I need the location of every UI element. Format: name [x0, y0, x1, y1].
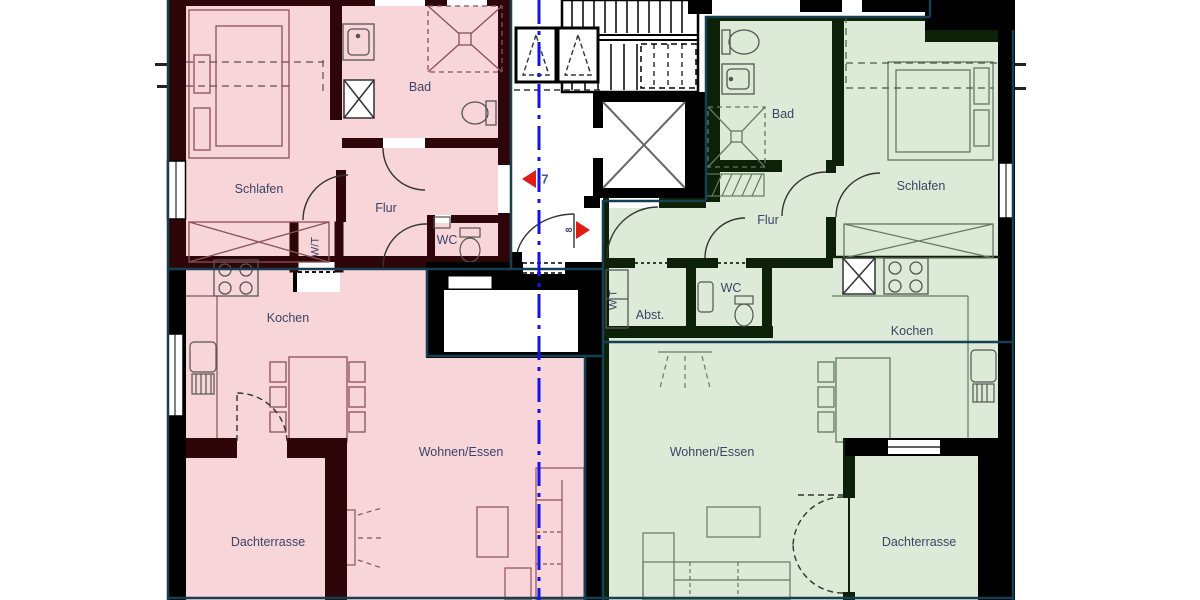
room-label-kochen-right: Kochen	[891, 325, 933, 338]
skylight-icon	[558, 28, 598, 82]
room-label-dachterrasse-right: Dachterrasse	[882, 536, 956, 549]
room-label-bad-right: Bad	[772, 108, 794, 121]
room-label-flur-right: Flur	[757, 214, 779, 227]
skylight-icon	[516, 28, 556, 82]
unit-marker-8-icon	[576, 221, 590, 239]
vent-shaft-icon	[843, 258, 875, 294]
room-label-flur-left: Flur	[375, 202, 397, 215]
window-icon	[168, 161, 186, 219]
unit-marker-7-icon	[522, 170, 536, 188]
room-label-wc-left: WC	[437, 234, 458, 247]
room-label-wc-right: WC	[721, 282, 742, 295]
void-room	[426, 262, 602, 358]
room-label-abst-right: Abst.	[636, 309, 665, 322]
floor-plan-drawing	[0, 0, 1200, 600]
window-icon	[168, 334, 183, 416]
room-label-bad-left: Bad	[409, 81, 431, 94]
room-label-wt-left: W/T	[311, 237, 322, 257]
room-label-wohnen-left: Wohnen/Essen	[419, 446, 504, 459]
floor-plan: Schlafen Bad Flur WC W/T Kochen Wohnen/E…	[0, 0, 1200, 600]
room-label-schlafen-right: Schlafen	[897, 180, 946, 193]
room-label-wt-right: W T	[609, 290, 620, 310]
elevator-icon	[593, 92, 695, 198]
room-label-dachterrasse-left: Dachterrasse	[231, 536, 305, 549]
room-label-schlafen-left: Schlafen	[235, 183, 284, 196]
unit-number-8: 8	[564, 227, 574, 232]
room-label-kochen-left: Kochen	[267, 312, 309, 325]
vent-shaft-icon	[344, 80, 374, 118]
unit-number-7: 7	[541, 172, 548, 187]
room-label-wohnen-right: Wohnen/Essen	[670, 446, 755, 459]
